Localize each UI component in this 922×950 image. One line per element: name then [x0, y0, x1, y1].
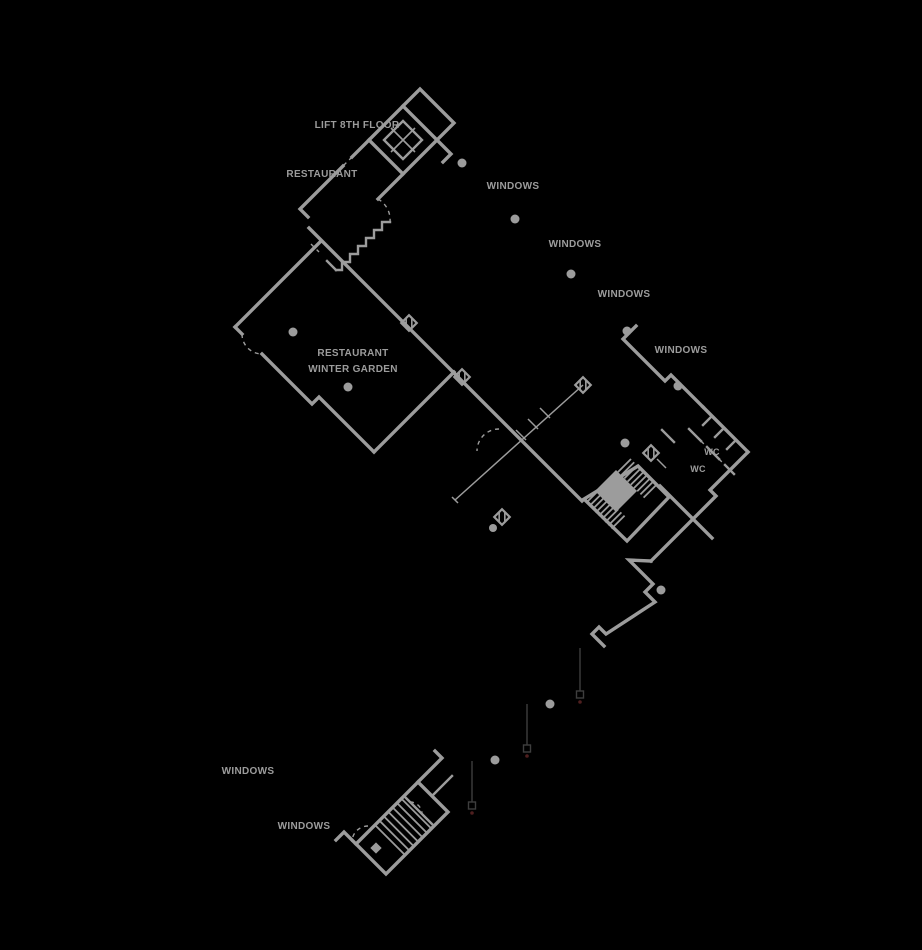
windows-label-5: WINDOWS — [222, 766, 275, 777]
column-dot — [289, 328, 298, 337]
windows-label-4: WINDOWS — [655, 345, 708, 356]
column-dot — [546, 700, 555, 709]
northeast-exterior-wall — [623, 326, 703, 407]
door-swing-arc — [477, 429, 499, 451]
floor-plan-canvas: LIFT 8TH FLOOR RESTAURANT WINDOWS WINDOW… — [0, 0, 922, 950]
column-dot — [657, 586, 666, 595]
lift-shaft — [369, 89, 454, 174]
column-dot — [458, 159, 467, 168]
wc-label-1: WC — [704, 447, 720, 457]
windows-label-6: WINDOWS — [278, 821, 331, 832]
wc-wing — [592, 407, 748, 646]
door-swing-arc — [242, 334, 262, 354]
column-dot — [344, 383, 353, 392]
stair-core — [584, 459, 669, 541]
column-dot — [511, 215, 520, 224]
lift-cross-icon — [391, 128, 415, 152]
floor-plan-drawing: LIFT 8TH FLOOR RESTAURANT WINDOWS WINDOW… — [0, 0, 922, 950]
windows-label-1: WINDOWS — [487, 181, 540, 192]
landing-pad — [370, 842, 381, 853]
column-dot — [491, 756, 500, 765]
wc-label-2: WC — [690, 464, 706, 474]
bottom-stair-structure — [336, 751, 452, 874]
winter-garden-label-line2: WINTER GARDEN — [308, 364, 397, 375]
column — [643, 445, 659, 461]
restaurant-label: RESTAURANT — [286, 169, 357, 180]
windows-label-2: WINDOWS — [549, 239, 602, 250]
section-markers — [469, 586, 666, 815]
column-dot — [621, 439, 630, 448]
windows-label-3: WINDOWS — [598, 289, 651, 300]
window-colonnade-upper — [458, 159, 683, 391]
column — [494, 509, 510, 525]
winter-garden-label-line1: RESTAURANT — [317, 348, 388, 359]
column-dot — [489, 524, 497, 532]
column-dot — [567, 270, 576, 279]
stair-treads — [375, 799, 431, 855]
winter-garden-room — [235, 228, 582, 501]
lift-floor-label: LIFT 8TH FLOOR — [315, 120, 400, 131]
glass-partition — [452, 377, 591, 532]
door-swing-arc — [378, 199, 390, 222]
